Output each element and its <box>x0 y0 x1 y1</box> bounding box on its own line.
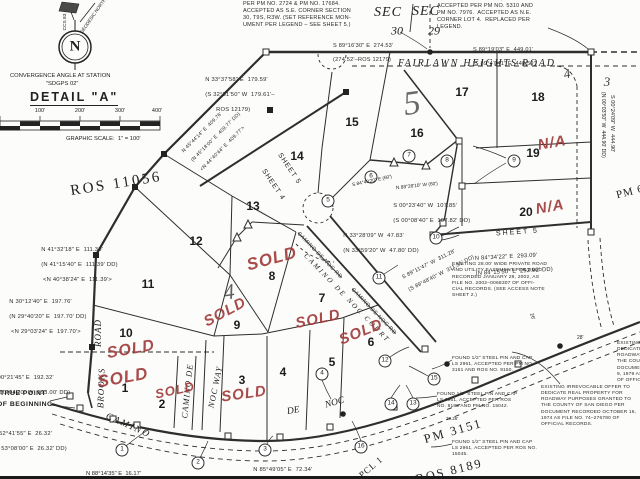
north-letter: N <box>70 38 81 55</box>
scale-bar <box>0 116 160 131</box>
monument-marker-7: 7 <box>403 150 416 163</box>
monument-marker-11: 11 <box>373 272 386 285</box>
scale-tick-200: 200' <box>75 108 85 114</box>
dimension-26: 26' <box>528 313 535 321</box>
bearing-line: (N 41°15'40" E 111.39' DD) <box>41 262 118 268</box>
monument-marker-9: 9 <box>508 155 521 168</box>
lot-number-8: 8 <box>269 269 276 283</box>
monument-marker-12: 12 <box>379 355 392 368</box>
lot-number-7: 7 <box>319 291 326 305</box>
bearing-line: [S 89°47'41" E 448.59'] <box>473 61 537 67</box>
monument-marker-3: 3 <box>259 444 272 457</box>
bearing-west-192: N 00°21'45" E 192.32' (N 00°04'20" W 193… <box>0 368 70 405</box>
scale-tick-400: 400' <box>152 108 162 114</box>
bearing-line: N 00°21'45" E 192.32' <box>0 375 54 381</box>
bearing-line: (274.52'–ROS 12179) <box>333 57 391 63</box>
lot-number-12: 12 <box>189 234 202 248</box>
bearing-line: N 30°12'40" E 197.76' <box>9 299 72 305</box>
monument-marker-1: 1 <box>116 444 129 457</box>
survey-flag-icon <box>59 2 79 13</box>
note-easement: EXISTING 28.00' WIDE PRIVATE ROAD AND UT… <box>452 262 547 300</box>
lot-number-4: 4 <box>280 365 287 379</box>
north-arrow <box>59 2 95 70</box>
monument-marker-8: 8 <box>441 155 454 168</box>
bearing-line: N 33°28'09" W 47.83' <box>343 233 404 239</box>
bearing-fairlawn-east: S 89°19'03" E 449.01' [S 89°47'41" E 448… <box>466 40 537 76</box>
bearing-line: (S 32°31'50" W 179.61'– <box>205 92 274 98</box>
lot-number-13: 13 <box>246 199 259 213</box>
detail-a-title: DETAIL "A" <box>30 90 118 106</box>
bearing-line: <N 40°38'24" E 111.39'> <box>41 277 112 283</box>
note-ne-corner: FOUND 1/2" STEEL PIN, NO CAP. ACCEPTED P… <box>437 0 533 31</box>
monument-marker-13: 13 <box>407 398 420 411</box>
scale-tick-100: 100' <box>35 108 45 114</box>
monument-marker-14: 14 <box>385 398 398 411</box>
scale-tick-300: 300' <box>115 108 125 114</box>
graphic-scale-caption: GRAPHIC SCALE: 1" = 100' <box>66 136 141 143</box>
bearing-line: <N 29°03'24" E 197.70'> <box>9 329 81 335</box>
monument-marker-4: 4 <box>316 368 329 381</box>
dimension-28: 28' <box>577 336 584 342</box>
note-se-corner: PER PM NO. 2724 & PM NO. 17684. ACCEPTED… <box>243 1 351 29</box>
bearing-line: S 52°41'55" E 26.32' <box>0 431 52 437</box>
note-found-pin-1: FOUND 1/2" STEEL PIN AND CAP LS 2961, AC… <box>452 356 534 374</box>
lot-number-11: 11 <box>142 277 155 291</box>
note-irrevocable-1979: EXISTING IRREVOCABLE DEDICATE REAL PROPE… <box>617 341 640 384</box>
bearing-line: S 00°23'40" W 107.85' <box>393 203 457 209</box>
lot-number-14: 14 <box>290 149 303 163</box>
bearing-fairlawn-west: S 89°16'30" E 274.53' (274.52'–ROS 12179… <box>326 36 393 72</box>
lot-number-10: 10 <box>119 326 132 340</box>
lot-number-5: 5 <box>329 355 336 369</box>
convergence-note-line1: CONVERGENCE ANGLE AT STATION <box>10 73 110 80</box>
bearing-west-197: N 30°12'40" E 197.76' (N 29°40'20" E 197… <box>2 292 87 344</box>
monument-marker-16: 16 <box>355 441 368 454</box>
true-point-line1: TRUE POINT <box>0 390 46 398</box>
monument-marker-15: 15 <box>428 373 441 386</box>
bearing-line: N 33°37'58" E 179.59' <box>205 77 268 83</box>
bearing-southwest-26: S 52°41'55" E 26.32' (S 53°08'00" E 26.3… <box>0 424 67 461</box>
bearing-line: N 85°49'05" E 72.34' <box>253 467 312 473</box>
convergence-note-line2: "SDGPS 02" <box>46 81 78 88</box>
dimension-30-26: 30.26' <box>446 416 458 421</box>
bearing-west-111: N 41°32'18" E 111.30' (N 41°15'40" E 111… <box>34 240 118 292</box>
monument-marker-2: 2 <box>192 457 205 470</box>
bearing-line: N 41°32'18" E 111.30' <box>41 247 103 253</box>
bearing-line: N 84°34'22" E 293.09' <box>475 253 538 262</box>
plat-map: N CCS 83 GEODESIC NORTH CONVERGENCE ANGL… <box>0 0 640 479</box>
monument-marker-5: 5 <box>322 195 335 208</box>
lot-number-17: 17 <box>455 85 468 99</box>
bearing-east-444-record: (N 00°03'50" W 444.90' DD) <box>599 92 605 158</box>
adjacent-lot-3: 3 <box>604 74 611 90</box>
bearing-line: (N 29°40'20" E 197.70' DD) <box>9 314 86 320</box>
note-found-pin-2: FOUND 1/2" STEEL PIN AND CAP LS 2961, AC… <box>437 392 517 410</box>
bearing-line: (S 53°08'00" E 26.32' DD) <box>0 446 67 452</box>
bearing-line: (N 33°59'20" W 47.80' DD) <box>343 248 419 254</box>
lot-number-18: 18 <box>531 90 544 104</box>
bearing-line: S 89°19'03" E 449.01' <box>473 47 533 53</box>
ccs-83-label: CCS 83 <box>63 14 69 31</box>
lot-number-16: 16 <box>410 126 423 140</box>
lot-number-9: 9 <box>234 318 241 332</box>
note-irrevocable-1974: EXISTING IRREVOCABLE OFFER TO DEDICATE R… <box>541 385 636 428</box>
sec-right-label: SEC <box>412 4 440 20</box>
monument-marker-10: 10 <box>430 232 443 245</box>
brooks-road-word-road: ROAD <box>93 319 103 347</box>
note-found-pin-3: FOUND 1/2" STEEL PIN AND CAP LS 2961, AC… <box>452 440 537 458</box>
bearing-east-444-main: S 00°24'09" W 444.90' <box>609 95 615 152</box>
bearing-line: S 89°16'30" E 274.53' <box>333 43 393 49</box>
bearing-line: (S 00°08'40" E 107.82' DD) <box>393 218 470 224</box>
lot-number-20: 20 <box>519 205 532 219</box>
bearing-mid-107: S 00°23'40" W 107.85' (S 00°08'40" E 107… <box>386 196 470 233</box>
sec-left-label: SEC <box>374 5 402 21</box>
lot-number-15: 15 <box>345 115 358 129</box>
true-point-line2: OF BEGINNING <box>0 401 53 409</box>
